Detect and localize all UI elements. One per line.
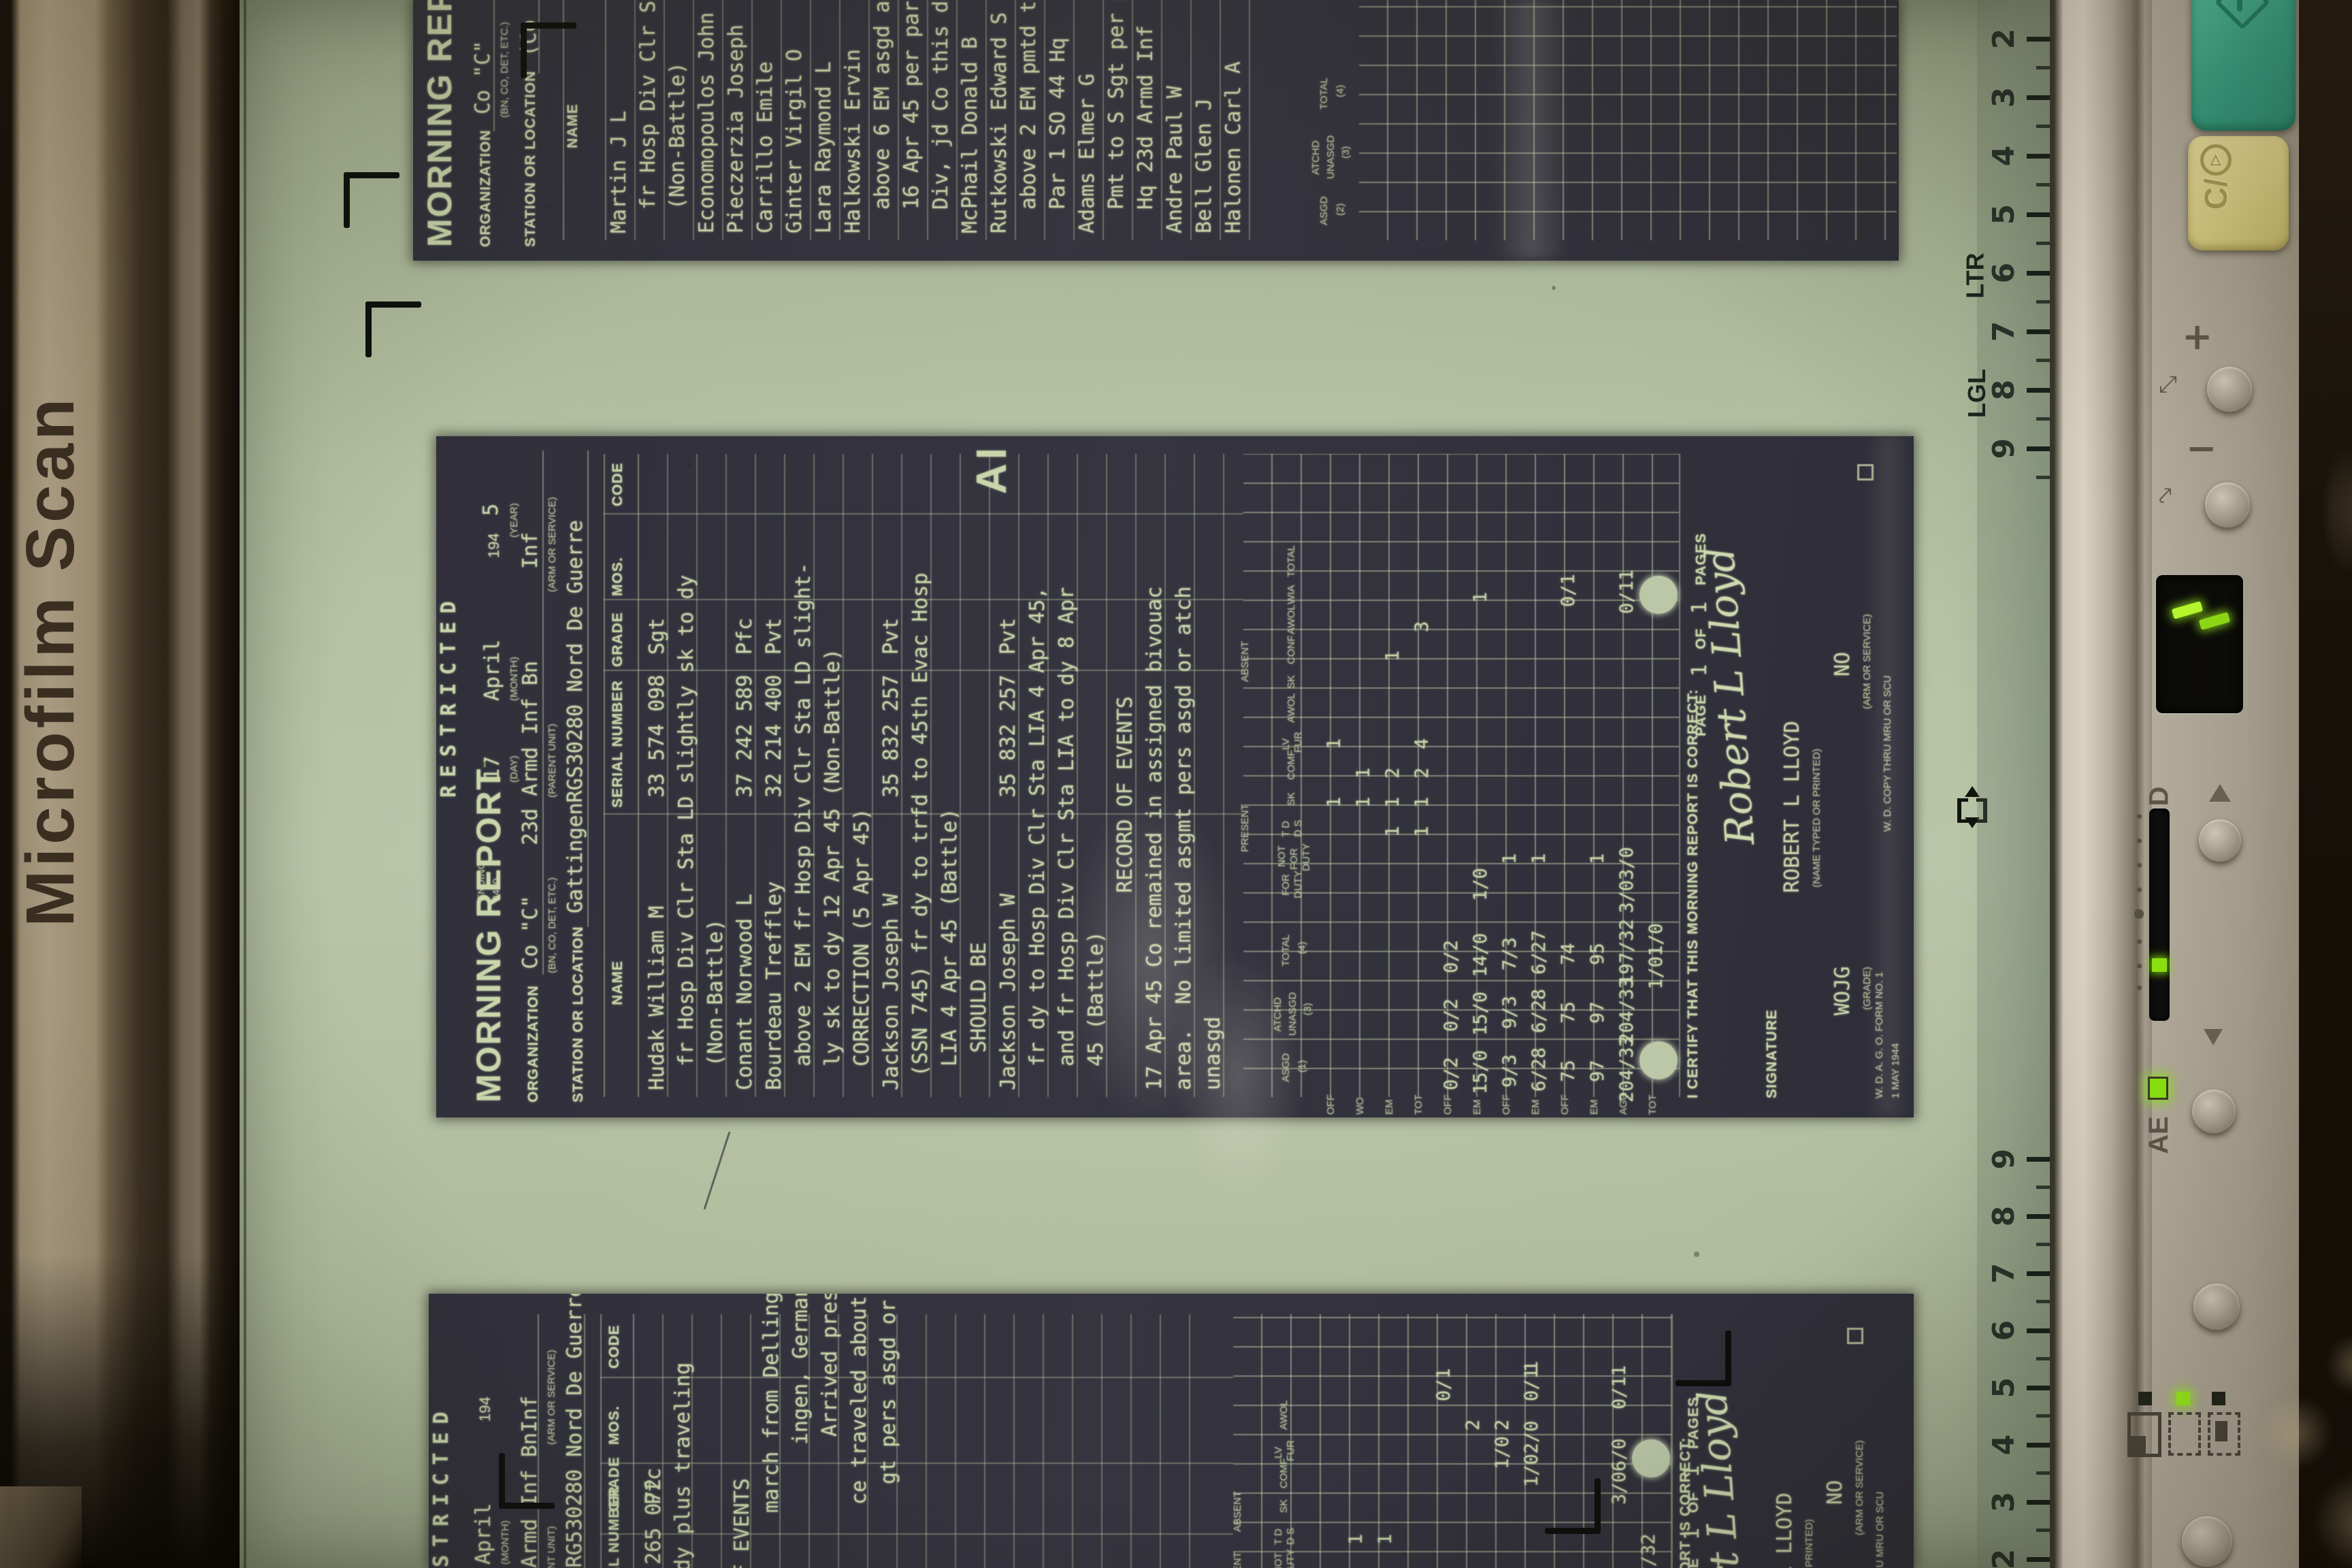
doc-text: STATION OR LOCATION	[523, 71, 538, 247]
doc-text: NAME	[610, 960, 625, 1005]
doc-text: 17	[483, 756, 503, 781]
doc-text: 3/06/0	[1610, 1438, 1629, 1505]
form-rule	[1671, 1314, 1673, 1568]
document-frame-middle: RESTRICTEDMORNING REPORTENDING240017Apri…	[436, 436, 1914, 1117]
doc-text: OFF	[1501, 1094, 1512, 1115]
ruler-tick-icon	[2036, 417, 2050, 421]
doc-text: 16 Apr 45 per par 1 SO 94 Hq	[902, 0, 922, 210]
doc-text: FUR	[1285, 1440, 1296, 1461]
column-rule	[600, 1377, 1233, 1378]
doc-text: RESTRICTED	[439, 593, 459, 798]
clear-stop-icon: C/▷	[2200, 144, 2232, 210]
doc-text: Pmt to S Sgt per par 1 SO 44	[1107, 0, 1127, 210]
doc-text: RECORD OF EVENTS	[1115, 696, 1136, 893]
doc-text: 1	[1384, 797, 1402, 808]
ruler-number: 2	[1989, 25, 2019, 52]
doc-text: (4)	[1296, 942, 1308, 954]
doc-text: D S	[1285, 1528, 1296, 1545]
focus-knob[interactable]	[2193, 1284, 2240, 1330]
doc-text: DUTY	[1292, 870, 1304, 898]
ruler-number: 4	[1989, 142, 2019, 169]
density-slider[interactable]	[2149, 808, 2170, 1021]
doc-text: 97	[1588, 1001, 1607, 1024]
ruler-tick-icon	[2027, 154, 2050, 159]
doc-text: 0/11	[1610, 1365, 1629, 1409]
doc-text: (ARM OR SERVICE)	[546, 497, 558, 592]
ruler-tick-icon	[2036, 1529, 2050, 1532]
ruler-number: 5	[1989, 1374, 2019, 1401]
doc-text: SK	[1286, 792, 1297, 806]
column-rule	[604, 513, 1243, 514]
clear-stop-button[interactable]: C/▷	[2188, 136, 2289, 250]
doc-text: CONF	[1286, 636, 1297, 665]
crop-mark-icon	[521, 22, 576, 78]
doc-text: (GRADE)	[1861, 967, 1873, 1010]
doc-text: march from Delling-	[762, 1294, 782, 1513]
doc-text: 1 MAY 1944	[1890, 1043, 1901, 1098]
doc-text: 6/28	[1530, 1047, 1548, 1092]
doc-text: W. D. A. G. O. FORM NO. 1	[1874, 972, 1885, 1098]
ruler-number: 9	[1989, 1145, 2019, 1173]
doc-text: 0/1	[1522, 1368, 1541, 1401]
doc-text: MOS.	[607, 1405, 621, 1445]
mode-led-negative	[2212, 1392, 2225, 1405]
doc-text: unasgd	[1203, 1017, 1224, 1090]
doc-text: 197/32	[1618, 919, 1636, 985]
density-knob[interactable]	[2199, 819, 2241, 862]
doc-text: TOTAL	[1280, 934, 1292, 966]
ruler-tick-icon	[2027, 212, 2050, 217]
doc-text: PAGE	[1686, 1558, 1701, 1568]
morning-report-top: MORNING REPORTORGANIZATIONCo "C"(BN, CO,…	[413, 0, 1899, 261]
doc-text: WIA	[1286, 585, 1297, 604]
doc-text: 33 574 098	[647, 674, 668, 798]
ruler-tick-icon	[2036, 66, 2050, 69]
doc-text: Carrillo Emile	[755, 61, 776, 233]
doc-text: Ginter Virgil O	[785, 49, 805, 233]
doc-text: UNASGD	[1287, 992, 1298, 1036]
doc-text: ingen, Germany.	[791, 1294, 811, 1445]
doc-text: 95	[1588, 943, 1607, 965]
doc-text: LV	[1280, 738, 1292, 750]
crop-mark-icon	[344, 172, 399, 228]
doc-text: 9/3	[1501, 1054, 1519, 1088]
ruler-tick-icon	[2036, 1243, 2050, 1246]
glass-edge	[244, 0, 246, 1568]
doc-text: Pfc	[644, 1468, 664, 1505]
start-scan-slot-icon	[2237, 0, 2242, 12]
doc-text: Hudak William M	[647, 906, 668, 1090]
doc-text: OFF	[1325, 1094, 1337, 1115]
doc-text: 0/1	[1435, 1368, 1453, 1401]
doc-text: (2)	[1335, 203, 1346, 216]
doc-text: Par 1 SO 44 Hq	[1048, 37, 1068, 210]
panel-highlight	[0, 1486, 82, 1568]
doc-text: 3	[1413, 621, 1431, 632]
doc-text: 1/0	[1471, 868, 1490, 901]
doc-text: NOT	[1276, 845, 1288, 867]
ruler-tick-icon	[2027, 37, 2050, 42]
doc-text: 5	[481, 504, 502, 516]
doc-text: Pieczerzia Joseph	[726, 24, 747, 233]
doc-text: (3)	[1302, 1003, 1313, 1015]
doc-text: 1/02/0	[1522, 1420, 1541, 1487]
doc-text: ORGANIZATION	[478, 129, 493, 247]
ruler-tick-icon	[2036, 476, 2050, 479]
doc-text: 1/01/0	[1647, 923, 1665, 990]
doc-text: April	[474, 1503, 494, 1565]
ruler-tick-icon	[2027, 1500, 2050, 1505]
doc-text: 204/33	[1618, 1036, 1636, 1102]
doc-text: (3)	[1340, 146, 1352, 159]
doc-text: (BN, CO, DET, ETC.)	[499, 22, 510, 118]
ae-label: AE	[2145, 1116, 2172, 1154]
doc-text: SK	[1286, 675, 1297, 689]
doc-text: and fr Hosp Div Clr Sta LIA to dy 8 Apr	[1057, 587, 1077, 1066]
document-frame-top: MORNING REPORTORGANIZATIONCo "C"(BN, CO,…	[413, 0, 1899, 261]
doc-text: (ARM OR SERVICE)	[1861, 614, 1873, 709]
doc-text: 2	[1493, 1420, 1512, 1431]
crop-mark-icon	[1545, 1478, 1601, 1534]
doc-text: 74	[1559, 943, 1578, 965]
doc-text: FUR	[1292, 732, 1304, 753]
doc-text: NOT	[1273, 1552, 1284, 1568]
ruler-number: 6	[1989, 1317, 2019, 1344]
ruler-number: 9	[1989, 435, 2019, 462]
film-ruler: 2345678998765432LTRLGL	[1977, 0, 2050, 1568]
doc-text: 23d Armd Inf Bn	[521, 661, 541, 845]
ruler-number: 6	[1989, 259, 2019, 287]
doc-text: Pvt	[764, 618, 785, 655]
film-advance-knob[interactable]	[2182, 1516, 2232, 1567]
machine-model-label: Microfilm Scan	[16, 395, 84, 927]
doc-text: to dy plus traveling	[673, 1362, 693, 1568]
doc-text: ce traveled about	[849, 1296, 870, 1505]
doc-text: Sgt	[647, 618, 668, 655]
doc-text: 1	[1376, 1534, 1394, 1545]
doc-text: OFF	[1442, 1094, 1454, 1115]
doc-text: FOR	[1280, 874, 1292, 896]
doc-text: 14/0	[1471, 933, 1490, 977]
doc-text: (Non-Battle)	[668, 62, 688, 210]
doc-text: 6/27	[1530, 930, 1548, 975]
doc-text: (SSN 745) fr dy to trfd to 45th Evac Hos…	[911, 572, 931, 1077]
doc-text: ORGANIZATION	[526, 985, 540, 1102]
doc-text: Robert L Lloyd	[1700, 546, 1760, 846]
doc-text: (PARENT UNIT)	[546, 1526, 557, 1568]
doc-text: 32 214 400	[764, 674, 785, 798]
ruler-number: 4	[1989, 1431, 2019, 1458]
machine-left-panel: Microfilm Scan	[0, 0, 240, 1568]
doc-text: 0/2	[1442, 998, 1460, 1032]
doc-text: SERIAL NUMBER	[610, 680, 625, 808]
crop-mark-icon	[499, 1453, 555, 1509]
doc-text: (NAME TYPED OR PRINTED)	[1811, 749, 1823, 887]
doc-text: 45 (Battle)	[1086, 931, 1107, 1066]
doc-text: 37 242 589	[735, 674, 755, 798]
film-negative-icon	[2208, 1412, 2240, 1456]
zoom-in-symbol: +	[2182, 318, 2212, 355]
doc-text: COMF	[1278, 1458, 1290, 1488]
doc-text: 1	[1413, 826, 1431, 837]
exposure-display	[2156, 575, 2243, 713]
doc-text: NAME	[566, 103, 580, 148]
doc-text: (MONTH)	[500, 1520, 511, 1565]
doc-text: NO	[1825, 1480, 1846, 1505]
doc-text: above 2 EM pmtd to Pfc per	[1019, 0, 1039, 210]
doc-text: (ARM OR SERVICE)	[1854, 1440, 1865, 1535]
doc-text: 75	[1559, 1001, 1578, 1024]
doc-text: Lara Raymond L	[814, 61, 834, 233]
doc-text: FOR	[1288, 848, 1300, 870]
doc-text: TOT	[1413, 1094, 1424, 1115]
doc-text: 35 832 257	[998, 674, 1019, 798]
zoom-out-knob[interactable]	[2205, 483, 2250, 527]
form-checkbox	[1847, 1328, 1863, 1344]
doc-text: 0/2	[1442, 1057, 1460, 1090]
doc-text: (4)	[1335, 85, 1346, 97]
doc-text: Conant Norwood L	[735, 894, 755, 1090]
ae-knob[interactable]	[2192, 1090, 2236, 1133]
enlarge-arrows-icon: ⤢	[2159, 373, 2177, 396]
doc-text: PAGE	[1694, 694, 1708, 736]
bokeh-highlight	[2313, 1470, 2352, 1568]
doc-text: MOS.	[610, 557, 625, 596]
doc-text: 1	[1384, 826, 1402, 837]
doc-text: 2	[1384, 768, 1402, 779]
doc-text: 1	[1501, 853, 1519, 864]
ruler-number: 8	[1989, 1203, 2019, 1230]
doc-text: 0/1	[1559, 574, 1578, 607]
doc-text: 1	[1325, 797, 1343, 808]
count-grid	[1359, 0, 1897, 240]
doc-text: 1	[1325, 738, 1343, 749]
doc-text: above 6 EM asgd and jd fr 17th	[872, 0, 893, 210]
doc-text: Arrived present	[820, 1294, 840, 1437]
doc-text: MORNING REPORT	[472, 768, 506, 1102]
ruler-number: 7	[1989, 1260, 2019, 1287]
ruler-number: 3	[1989, 1488, 2019, 1516]
doc-text: 1/0	[1493, 1436, 1512, 1469]
doc-text: SK	[1278, 1499, 1290, 1513]
crop-mark-icon	[1676, 1330, 1731, 1386]
doc-text: EM	[1384, 1100, 1395, 1115]
doc-text: gt pers asgd or	[879, 1300, 899, 1484]
doc-text: LIA 4 Apr 45 (Battle)	[940, 808, 960, 1066]
ruler-tick-icon	[2036, 242, 2050, 245]
doc-text: 194	[478, 1396, 493, 1422]
doc-text: I CERTIFY THAT THIS MORNING REPORT IS CO…	[1686, 689, 1700, 1098]
doc-text: DUTY	[1301, 843, 1312, 871]
display-segment	[2172, 601, 2203, 619]
doc-text: 75	[1559, 1060, 1578, 1082]
doc-text: ly sk to dy 12 Apr 45 (Non-Battle)	[823, 649, 843, 1066]
doc-text: (NAME TYPED OR PRINTED)	[1803, 1519, 1815, 1568]
doc-text: area. No limited asgmt pers asgd or atch	[1174, 586, 1194, 1090]
doc-text: 2	[1464, 1420, 1482, 1431]
doc-text: EM	[1588, 1100, 1600, 1115]
doc-text: 1	[1354, 768, 1373, 779]
ruler-number: 8	[1989, 376, 2019, 404]
doc-text: EM	[1530, 1100, 1541, 1115]
ruler-number: 3	[1989, 84, 2019, 111]
doc-text: Halonen Carl A	[1224, 61, 1244, 233]
doc-text: SIGNATURE	[1765, 1009, 1779, 1098]
doc-text: RECORD OF EVENTS	[732, 1478, 753, 1568]
doc-text: TOTAL	[1318, 78, 1330, 110]
doc-text: 1	[1413, 797, 1431, 808]
form-rule	[1679, 454, 1680, 1097]
doc-text: ASGD	[1318, 196, 1330, 225]
doc-text: 1	[1347, 1534, 1365, 1545]
doc-text: above 2 EM fr Hosp Div Clr Sta LD slight…	[794, 562, 814, 1066]
doc-text: D S	[1292, 820, 1304, 837]
doc-text: 15/0	[1471, 1050, 1490, 1094]
ruler-tick-icon	[2036, 1471, 2050, 1475]
doc-text: Bourdeau Treffley	[764, 881, 785, 1090]
density-indicator	[2152, 958, 2167, 972]
doc-text: CODE	[610, 462, 625, 506]
doc-text: ASGD	[1280, 1053, 1292, 1082]
film-scratch	[704, 1131, 731, 1209]
doc-text: (1)	[1296, 1060, 1308, 1073]
ruler-tick-icon	[2027, 1271, 2050, 1276]
ruler-number: 2	[1989, 1546, 2019, 1568]
doc-text: McPhail Donald B	[960, 37, 981, 233]
ruler-tick-icon	[2027, 1443, 2050, 1448]
column-rule	[600, 1533, 1233, 1535]
bokeh-highlight	[2258, 1395, 2333, 1470]
form-rule	[604, 454, 605, 1097]
ruler-tick-icon	[2036, 1300, 2050, 1303]
doc-text: 1	[1530, 853, 1548, 864]
punch-hole	[1639, 576, 1678, 614]
doc-text: fr Hosp Div Clr Sta LD sk to dy	[638, 0, 659, 210]
doc-text: Hq 23d Armd Inf	[1136, 25, 1156, 210]
doc-text: PRESENT	[1232, 1552, 1243, 1568]
doc-text: 1	[1384, 651, 1402, 661]
start-scan-button[interactable]	[2191, 0, 2296, 131]
doc-text: Bell Glen J	[1194, 98, 1215, 233]
display-segment	[2199, 612, 2230, 630]
doc-text: 17 Apr 45 Co remained in assigned bivoua…	[1145, 586, 1165, 1090]
doc-text: (PARENT UNIT)	[546, 723, 558, 798]
doc-text: ENDING	[476, 862, 487, 901]
doc-text: T D	[1280, 821, 1292, 837]
doc-text: T D	[1273, 1529, 1284, 1545]
punch-hole	[1639, 1041, 1678, 1079]
doc-text: Pvt	[998, 618, 1019, 655]
doc-text: MORNING REPORT	[423, 0, 457, 247]
doc-text: GattingenRGS30280 Nord De Guerre	[566, 520, 586, 913]
reduce-arrows-icon: ⤤	[2159, 485, 2172, 508]
machine-right-edge	[2299, 0, 2352, 1568]
doc-text: 7/3	[1501, 937, 1519, 970]
ruler-tick-icon	[2027, 329, 2050, 334]
doc-text: Adams Elmer G	[1077, 73, 1098, 233]
paper-size-mark: LTR	[1963, 252, 1988, 298]
doc-text: AWOL	[1286, 604, 1297, 634]
doc-text: April	[483, 640, 503, 701]
doc-text: 1	[1354, 797, 1373, 808]
doc-text: AI	[971, 444, 1013, 494]
doc-text: AWOL	[1278, 1400, 1290, 1430]
doc-text: ATCHD	[1272, 997, 1284, 1032]
doc-text: CORRECTION (5 Apr 45)	[852, 808, 872, 1066]
doc-text: 197/32	[1639, 1533, 1658, 1568]
doc-text: WOJG	[1833, 966, 1853, 1015]
form-rule	[542, 451, 544, 975]
doc-text: RESTRICTED	[431, 1403, 452, 1568]
doc-text: Rutkowski Edward S	[990, 12, 1010, 233]
doc-text: SHOULD BE	[969, 942, 990, 1053]
doc-text: 35 832 257	[881, 674, 902, 798]
punch-hole	[1632, 1439, 1670, 1477]
doc-text: NO	[1833, 652, 1853, 676]
doc-text: Pvt	[881, 618, 902, 655]
doc-text: 3/03/0	[1618, 847, 1636, 913]
doc-text: Jackson Joseph W	[998, 894, 1019, 1090]
column-rule	[600, 1463, 1233, 1464]
doc-text: ABSENT	[1239, 641, 1251, 682]
microfilm-scanner-photo: MORNING REPORTORGANIZATIONCo "C"(BN, CO,…	[0, 0, 2352, 1568]
doc-text: (ARM OR SERVICE)	[546, 1350, 557, 1445]
doc-text: 194	[487, 533, 502, 558]
doc-text: UNASGD	[1325, 135, 1337, 179]
ruler-tick-icon	[2036, 1186, 2050, 1189]
slider-up-arrow-icon	[2209, 784, 2231, 802]
bokeh-highlight	[2326, 1334, 2352, 1395]
doc-text: GRADE	[610, 612, 625, 667]
doc-text: LV	[1273, 1447, 1284, 1458]
doc-text: Div, jd Co this date	[931, 0, 951, 210]
form-checkbox	[1857, 464, 1874, 480]
doc-text: 15/0	[1471, 992, 1490, 1036]
ruler-tick-icon	[2036, 1414, 2050, 1418]
doc-text: WO	[1354, 1097, 1366, 1115]
doc-text: OFF	[1559, 1094, 1571, 1115]
ruler-tick-icon	[2027, 1328, 2050, 1333]
ruler-tick-icon	[2027, 1214, 2050, 1219]
entry-rules	[634, 1314, 1218, 1568]
doc-text: ATCHD	[1310, 140, 1322, 175]
ruler-tick-icon	[2036, 359, 2050, 362]
ruler-tick-icon	[2036, 125, 2050, 128]
ruler-tick-icon	[2036, 300, 2050, 304]
doc-text: Andre Paul W	[1165, 86, 1186, 233]
morning-report-middle: RESTRICTEDMORNING REPORTENDING240017Apri…	[436, 436, 1914, 1117]
doc-text: 4	[1413, 738, 1431, 749]
scanner-screen: MORNING REPORTORGANIZATIONCo "C"(BN, CO,…	[240, 0, 2050, 1568]
density-label: D	[2145, 787, 2172, 806]
doc-text: Economopoulos John	[697, 12, 717, 233]
zoom-in-knob[interactable]	[2207, 367, 2252, 412]
ruler-number: 5	[1989, 201, 2019, 228]
doc-text: Halkowski Ervin	[843, 49, 864, 233]
ruler-number: 7	[1989, 318, 2019, 345]
doc-text: Pfc	[735, 618, 755, 655]
doc-text: PRESENT	[1239, 804, 1251, 852]
ruler-tick-icon	[2027, 95, 2050, 100]
doc-text: Co "C"	[473, 41, 493, 114]
doc-text: TOT	[1647, 1094, 1659, 1115]
doc-text: 1	[1522, 1361, 1541, 1372]
doc-text: W. D. COPY THRU MRU OR SCU	[1874, 1492, 1886, 1568]
doc-text: 2400	[491, 879, 502, 901]
doc-text: GRADE	[607, 1456, 621, 1512]
ruler-tick-icon	[2036, 1357, 2050, 1360]
doc-text: 1	[1588, 853, 1607, 864]
